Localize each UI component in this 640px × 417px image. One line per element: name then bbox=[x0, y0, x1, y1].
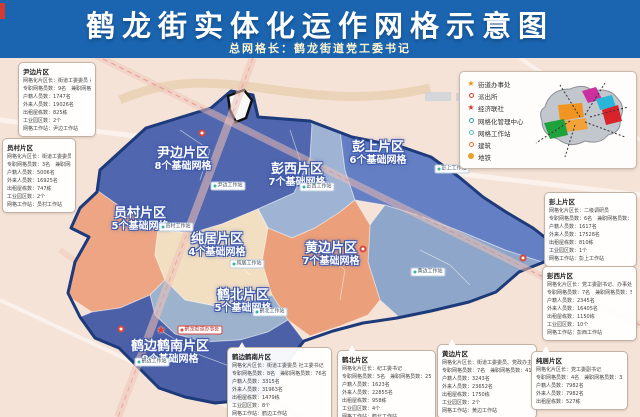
legend-item: ★街道办事处 bbox=[467, 78, 524, 90]
grid-station-chip: 纯居工作站 bbox=[229, 260, 264, 269]
infobox-row: 户籍人员数：1747名 bbox=[23, 93, 91, 101]
callout-tail bbox=[542, 346, 550, 353]
infobox-row: 户籍人员数：1617名 bbox=[549, 223, 632, 231]
legend-label: 派出所 bbox=[478, 91, 498, 101]
station-dot-icon bbox=[137, 361, 140, 364]
infobox-row: 出租屋栋数：747栋 bbox=[7, 185, 71, 193]
infobox-row: 工业园区数：1个 bbox=[549, 247, 632, 255]
grid-station-chip: 员村工作站 bbox=[158, 223, 193, 232]
star-icon: ★ bbox=[467, 80, 475, 88]
station-dot-icon bbox=[302, 186, 305, 189]
legend-label: 网格工作站 bbox=[478, 128, 511, 138]
infobox-row: 户籍人员数：5006名 bbox=[7, 169, 71, 177]
infobox-row: 网格化片区长：街道工委委员 人大工委主任 bbox=[7, 153, 71, 161]
infobox-row: 专职网格员数：8名 兼职网格员数：76名 bbox=[232, 370, 327, 378]
infobox-row: 网格工作站：黄边工作站 bbox=[442, 407, 532, 415]
poster-title: 鹤龙街实体化运作网格示意图 bbox=[0, 3, 640, 45]
legend-items: ★街道办事处派出所★经济联社网格化管理中心网格工作站建筑地铁 bbox=[467, 78, 524, 163]
grid-station-chip: 黄边工作站 bbox=[410, 268, 445, 277]
infobox-row: 外来人员数：31963名 bbox=[232, 386, 327, 394]
legend-item: 网格化管理中心 bbox=[467, 115, 524, 127]
infobox-row: 网格化片区长：街道工委委员、党政办主任 bbox=[442, 359, 532, 367]
legend-label: 经济联社 bbox=[478, 103, 504, 113]
infobox-row: 外来人员数：16405名 bbox=[547, 305, 632, 313]
station-dot-icon bbox=[161, 226, 164, 229]
infobox-row: 户籍人员数：2345名 bbox=[547, 297, 632, 305]
dot-icon bbox=[467, 129, 475, 137]
legend-item: ★经济联社 bbox=[467, 102, 524, 114]
overview-minimap bbox=[530, 77, 632, 163]
infobox-row: 专职网格员数：5名 兼职网格员数：25名 bbox=[342, 373, 431, 381]
infobox-row: 网格工作站：员村工作站 bbox=[7, 201, 71, 209]
infobox-row: 工业园区数：10个 bbox=[547, 321, 632, 329]
district-label-yinbian: 尹边片区8个基础网格 bbox=[155, 147, 212, 172]
infobox-row: 网格化片区长：街道工委委员 兼武装部长 bbox=[23, 77, 91, 85]
infobox-row: 网格化片区长：纪工委书记 bbox=[342, 365, 431, 373]
infobox-row: 网格工作站：尹边工作站 bbox=[23, 125, 91, 133]
infobox-row: 出租屋栋数：1750栋 bbox=[442, 391, 532, 399]
infobox-row: 网格工作站：鹤边工作站 bbox=[232, 410, 327, 417]
infobox-row: 外来人员数：23652名 bbox=[442, 383, 532, 391]
infobox-title: 彭上片区 bbox=[549, 196, 632, 206]
infobox-row: 工业园区数：8个 bbox=[232, 402, 327, 410]
district-label-huangbian: 黄边片区7个基础网格 bbox=[303, 242, 360, 267]
infobox-hebian: 鹤边鹤南片区 网格化片区长：街道工委委员 社工委书记专职网格员数：8名 兼职网格… bbox=[227, 347, 332, 417]
infobox-title: 黄边片区 bbox=[442, 348, 532, 358]
infobox-hebei: 鹤北片区 网格化片区长：纪工委书记专职网格员数：5名 兼职网格员数：25名户籍人… bbox=[337, 350, 436, 417]
legend-label: 网格化管理中心 bbox=[478, 116, 524, 126]
dot-icon bbox=[467, 153, 475, 161]
poster-canvas: 鹤龙街实体化运作网格示意图 总网格长：鹤龙街道党工委书记 ★街道办事处派出所★经… bbox=[0, 0, 640, 417]
infobox-row: 外来人员数：7982名 bbox=[536, 390, 623, 398]
title-bar: 鹤龙街实体化运作网格示意图 总网格长：鹤龙街道党工委书记 bbox=[0, 0, 640, 58]
legend-box: ★街道办事处派出所★经济联社网格化管理中心网格工作站建筑地铁 bbox=[459, 71, 637, 169]
legend-item: 派出所 bbox=[467, 90, 524, 102]
infobox-pengxi: 彭西片区 网格化片区长：党工委副书记、办事处主任专职网格员数：7名 兼职网格员数… bbox=[542, 266, 637, 341]
grid-station-chip: 鹤边工作站 bbox=[134, 358, 169, 367]
grid-station-chip: 彭西工作站 bbox=[299, 183, 334, 192]
legend-label: 地铁 bbox=[478, 152, 491, 162]
callout-tail bbox=[448, 339, 456, 346]
legend-item: 建筑 bbox=[467, 139, 524, 151]
ring-icon bbox=[467, 141, 475, 149]
infobox-row: 外来人员数：16925名 bbox=[7, 177, 71, 185]
legend-label: 建筑 bbox=[478, 140, 491, 150]
infobox-row: 网格化片区长：街道工委委员 社工委书记 bbox=[232, 362, 327, 370]
infobox-row: 网格化片区长：二级调研员 bbox=[549, 207, 632, 215]
station-dot-icon bbox=[232, 263, 235, 266]
infobox-row: 出租屋栋数：1150栋 bbox=[547, 313, 632, 321]
infobox-title: 尹边片区 bbox=[23, 66, 91, 76]
dot-icon bbox=[467, 117, 475, 125]
infobox-row: 网格工作站：鹤北工作站 bbox=[342, 413, 431, 417]
infobox-row: 专职网格员数：4名 兼职网格员数：35名 bbox=[536, 374, 623, 382]
infobox-row: 专职网格员数：7名 兼职网格员数：41名 bbox=[442, 367, 532, 375]
metro-station-icon bbox=[520, 255, 527, 262]
infobox-row: 出租屋栋数：825栋 bbox=[23, 109, 91, 117]
infobox-row: 出租屋栋数：810栋 bbox=[549, 239, 632, 247]
infobox-title: 鹤边鹤南片区 bbox=[232, 351, 327, 361]
star-icon: ★ bbox=[467, 104, 475, 112]
infobox-row: 专职网格员数：7名 兼职网格员数：50名 bbox=[547, 289, 632, 297]
legend-label: 街道办事处 bbox=[478, 79, 511, 89]
legend-item: 地铁 bbox=[467, 151, 524, 163]
station-dot-icon bbox=[213, 185, 216, 188]
poster-subtitle: 总网格长：鹤龙街道党工委书记 bbox=[0, 40, 640, 56]
infobox-title: 纯居片区 bbox=[536, 355, 623, 365]
station-dot-icon bbox=[255, 311, 258, 314]
infobox-row: 网格工作站：彭上工作站 bbox=[549, 255, 632, 263]
legend-item: 网格工作站 bbox=[467, 127, 524, 139]
infobox-chunju: 纯居片区 网格化片区长：党工委副书记专职网格员数：4名 兼职网格员数：35名户籍… bbox=[531, 351, 628, 410]
infobox-title: 员村片区 bbox=[7, 142, 71, 152]
infobox-row: 专职网格员数：3名 兼职网格员数：20名 bbox=[7, 161, 71, 169]
infobox-row: 出租屋栋数：1479栋 bbox=[232, 394, 327, 402]
infobox-row: 外来人员数：22855名 bbox=[342, 389, 431, 397]
infobox-row: 专职网格员数：6名 兼职网格员数：36名 bbox=[549, 215, 632, 223]
district-label-chunju: 纯居片区4个基础网格 bbox=[189, 233, 246, 258]
station-dot-icon bbox=[413, 271, 416, 274]
callout-tail bbox=[238, 342, 246, 349]
infobox-yuancun: 员村片区 网格化片区长：街道工委委员 人大工委主任专职网格员数：3名 兼职网格员… bbox=[2, 138, 76, 213]
street-office-star-icon: ★ bbox=[156, 324, 166, 337]
infobox-row: 户籍人员数：3315名 bbox=[232, 378, 327, 386]
infobox-row: 户籍人员数：1623名 bbox=[342, 381, 431, 389]
infobox-row: 网格化片区长：党工委副书记、办事处主任 bbox=[547, 281, 632, 289]
metro-station-icon bbox=[360, 246, 367, 253]
infobox-row: 工业园区数：2个 bbox=[23, 117, 91, 125]
infobox-row: 出租屋栋数：958栋 bbox=[342, 397, 431, 405]
infobox-row: 工业园区数：2个 bbox=[7, 193, 71, 201]
metro-station-icon bbox=[118, 326, 125, 333]
infobox-pengshang: 彭上片区 网格化片区长：二级调研员专职网格员数：6名 兼职网格员数：36名户籍人… bbox=[544, 192, 637, 267]
infobox-row: 工业园区数：4个 bbox=[342, 405, 431, 413]
infobox-row: 出租屋栋数：527栋 bbox=[536, 398, 623, 406]
infobox-row: 工业园区数：2个 bbox=[442, 399, 532, 407]
grid-station-chip: 鹤北工作站 bbox=[252, 308, 287, 317]
callout-tail bbox=[348, 345, 356, 352]
infobox-row: 网格化片区长：党工委副书记 bbox=[536, 366, 623, 374]
street-office-chip: 鹤龙街道办事处 bbox=[177, 326, 222, 335]
station-dot-icon bbox=[437, 168, 440, 171]
infobox-huangbian: 黄边片区 网格化片区长：街道工委委员、党政办主任专职网格员数：7名 兼职网格员数… bbox=[437, 344, 537, 417]
infobox-title: 鹤北片区 bbox=[342, 354, 431, 364]
infobox-title: 彭西片区 bbox=[547, 270, 632, 280]
infobox-row: 户籍人员数：3243名 bbox=[442, 375, 532, 383]
district-label-pengshang: 彭上片区6个基础网格 bbox=[350, 141, 407, 166]
infobox-row: 网格工作站：彭西工作站 bbox=[547, 329, 632, 337]
infobox-row: 外来人员数：17528名 bbox=[549, 231, 632, 239]
infobox-row: 专职网格员数：9名 兼职网格员数：19名 bbox=[23, 85, 91, 93]
infobox-row: 户籍人员数：7982名 bbox=[536, 382, 623, 390]
infobox-row: 外来人员数：19026名 bbox=[23, 101, 91, 109]
grid-station-chip: 尹边工作站 bbox=[210, 182, 245, 191]
infobox-yinbian: 尹边片区 网格化片区长：街道工委委员 兼武装部长专职网格员数：9名 兼职网格员数… bbox=[18, 62, 96, 137]
ring-icon bbox=[467, 92, 475, 100]
office-dot-icon bbox=[180, 329, 183, 332]
metro-station-icon bbox=[199, 130, 206, 137]
